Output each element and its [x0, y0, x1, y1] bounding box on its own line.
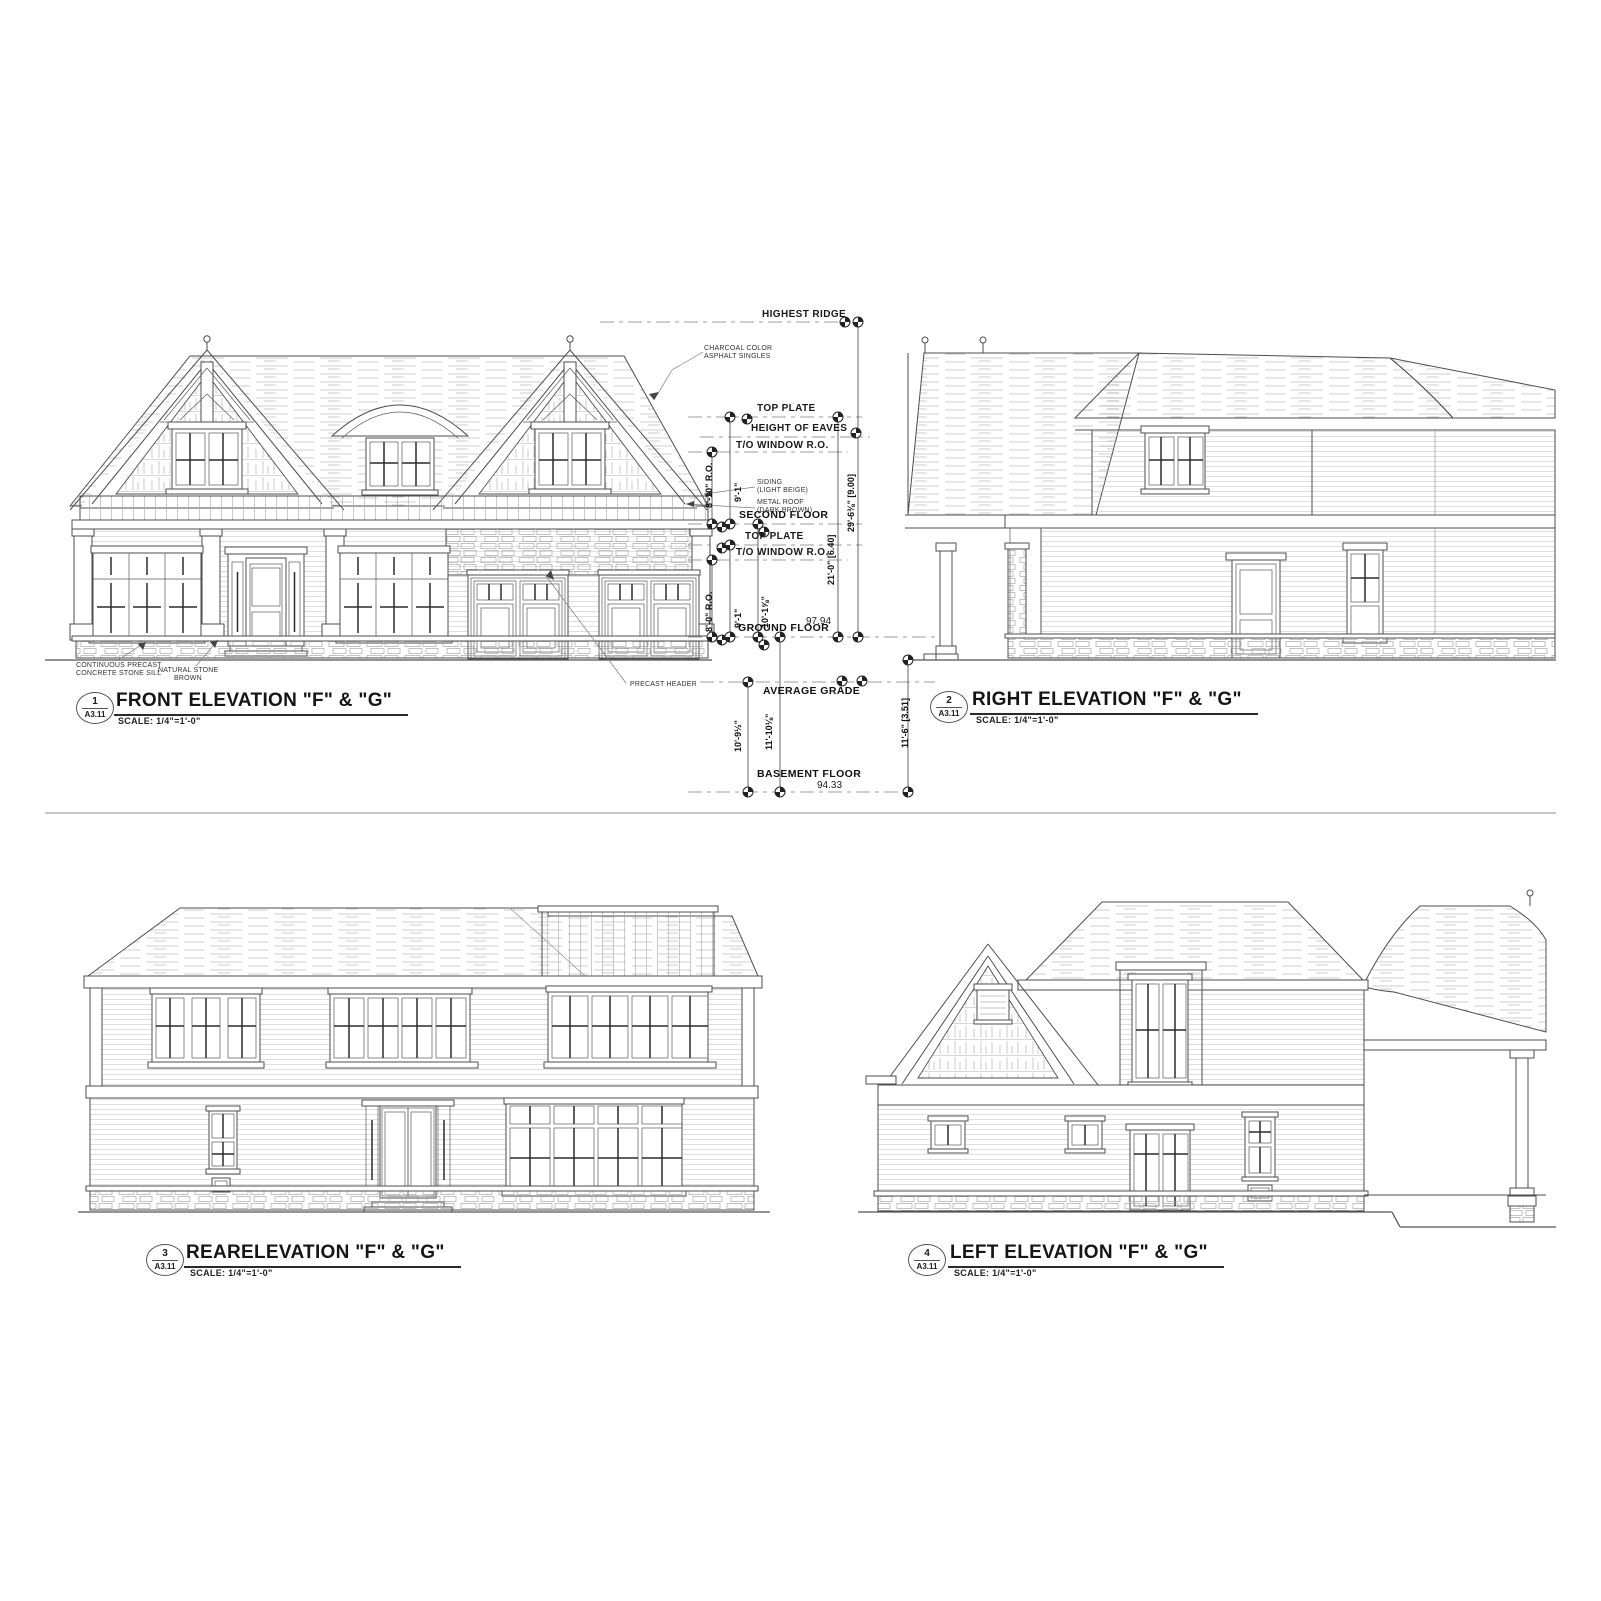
metal-roof-note-line1: METAL ROOF [757, 499, 804, 506]
dim-window-main-ro: 8'-0" R.O. [704, 592, 714, 632]
dim-window-main-height: 9'-1" [733, 609, 743, 628]
level-to-window-ro-upper: T/O WINDOW R.O. [736, 440, 829, 451]
rear-elevation-scale: SCALE: 1/4"=1'-0" [190, 1268, 273, 1278]
view-number: 4 [914, 1248, 939, 1261]
view-sheet-number: A3.11 [155, 1261, 176, 1272]
metal-roof-note-line2: (DARK BROWN) [757, 507, 812, 514]
basement-floor-elevation: 94.33 [817, 780, 842, 791]
view-number: 3 [152, 1248, 177, 1261]
dim-ridge-above-ground: 29'-6⅜" [9.00] [846, 474, 856, 532]
dim-grade-to-basement-right: 11'-6" [3.51] [900, 698, 910, 748]
annotation-overlay [0, 0, 1601, 1601]
view-number: 2 [936, 695, 961, 708]
dim-ground-to-second: 10'-1⅝" [760, 596, 770, 628]
roof-material-note-line2: ASPHALT SINGLES [704, 353, 771, 360]
natural-stone-note-line2: BROWN [174, 675, 202, 682]
level-height-of-eaves: HEIGHT OF EAVES [751, 423, 847, 434]
precast-sill-note-line2: CONCRETE STONE SILL [76, 670, 161, 677]
left-elevation-scale: SCALE: 1/4"=1'-0" [954, 1268, 1037, 1278]
rear-upper-window-center [326, 988, 478, 1068]
front-elevation-scale: SCALE: 1/4"=1'-0" [118, 716, 201, 726]
dim-ground-to-basement: 11'-10⅛" [764, 714, 774, 750]
siding-note-line1: SIDING [757, 479, 782, 486]
precast-sill-note-line1: CONTINUOUS PRECAST [76, 662, 162, 669]
view-bubble-left: 4 A3.11 [908, 1244, 946, 1276]
dim-window-upper-ro: 8'-10" R.O. [704, 463, 714, 508]
view-bubble-front: 1 A3.11 [76, 692, 114, 724]
level-basement-floor: BASEMENT FLOOR [757, 768, 861, 780]
view-sheet-number: A3.11 [917, 1261, 938, 1272]
view-bubble-rear: 3 A3.11 [146, 1244, 184, 1276]
level-to-window-ro-main: T/O WINDOW R.O. [736, 547, 829, 558]
level-average-grade: AVERAGE GRADE [763, 685, 860, 697]
right-dormer-window [1141, 426, 1209, 494]
right-elevation-scale: SCALE: 1/4"=1'-0" [976, 715, 1059, 725]
right-elevation-title: RIGHT ELEVATION "F" & "G" [970, 689, 1258, 715]
roof-material-note-line1: CHARCOAL COLOR [704, 345, 772, 352]
left-small-window-2 [1065, 1116, 1105, 1153]
left-elevation-drawing [858, 880, 1548, 1240]
siding-note-line2: (LIGHT BEIGE) [757, 487, 808, 494]
natural-stone-note-line1: NATURAL STONE [158, 667, 218, 674]
front-left-window [89, 546, 205, 643]
level-top-plate-main: TOP PLATE [745, 531, 804, 542]
front-right-window [336, 546, 452, 643]
rear-elevation-drawing [80, 880, 770, 1215]
view-sheet-number: A3.11 [85, 709, 106, 720]
dim-grade-to-basement: 10'-9½" [733, 720, 743, 752]
right-elevation-drawing [905, 332, 1555, 662]
left-elevation-title: LEFT ELEVATION "F" & "G" [948, 1242, 1224, 1268]
level-highest-ridge: HIGHEST RIDGE [762, 309, 846, 320]
rear-upper-window-right [544, 986, 716, 1068]
precast-header-note: PRECAST HEADER [630, 681, 697, 688]
view-sheet-number: A3.11 [939, 708, 960, 719]
dim-window-upper-height: 9'-1" [733, 483, 743, 502]
ground-floor-elevation: 97.94 [806, 616, 831, 627]
dim-plate-above-ground: 21'-0" [6.40] [826, 535, 836, 585]
view-bubble-right: 2 A3.11 [930, 691, 968, 723]
level-top-plate-upper: TOP PLATE [757, 403, 816, 414]
right-tall-window [1343, 543, 1387, 643]
left-small-window-1 [928, 1116, 968, 1153]
left-porch-column [1364, 1040, 1546, 1222]
rear-upper-window-left [148, 988, 264, 1068]
left-stair-window-block [1116, 962, 1206, 1087]
elevation-sheet: HIGHEST RIDGE TOP PLATE HEIGHT OF EAVES … [0, 0, 1601, 1601]
view-number: 1 [82, 696, 107, 709]
front-elevation-drawing [62, 332, 712, 662]
front-elevation-title: FRONT ELEVATION "F" & "G" [114, 690, 408, 716]
rear-elevation-title: REARELEVATION "F" & "G" [184, 1242, 461, 1268]
rear-lower-window-right [502, 1098, 686, 1196]
